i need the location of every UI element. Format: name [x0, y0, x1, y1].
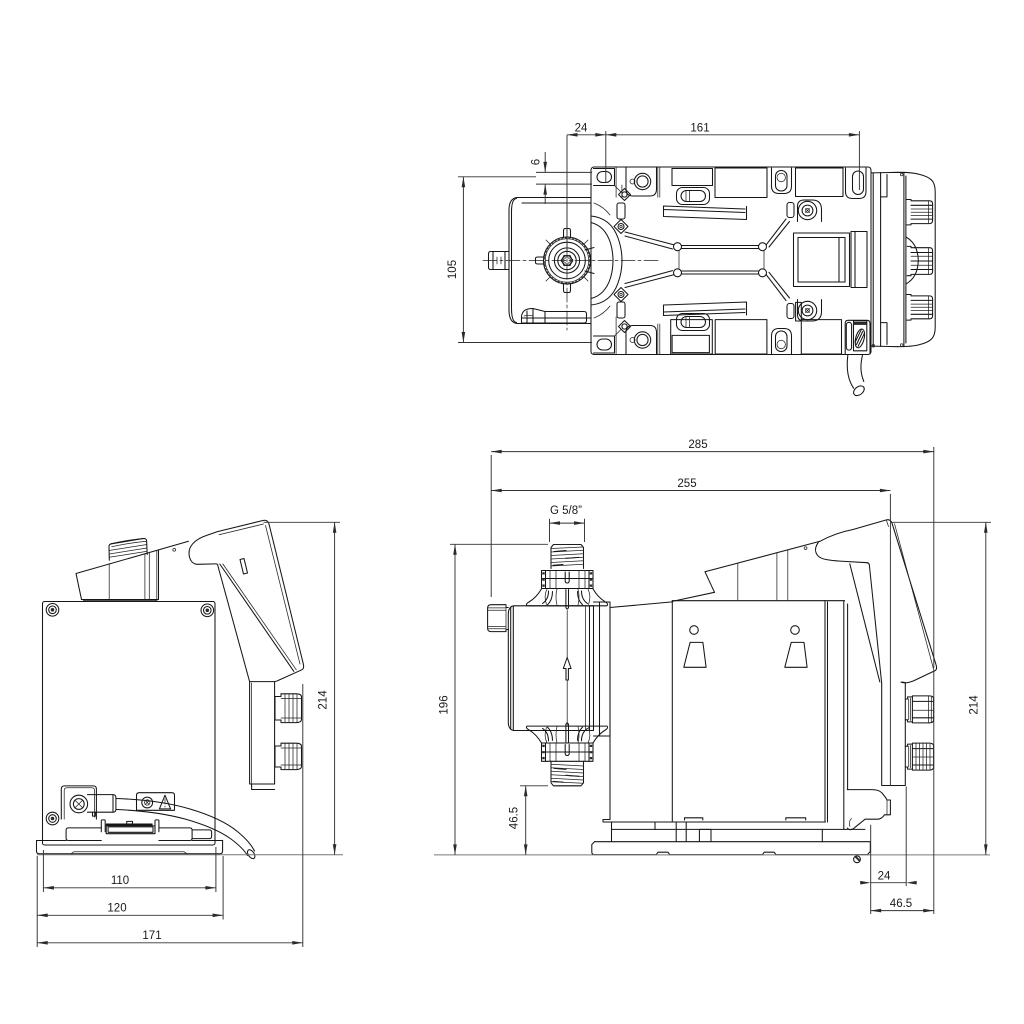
svg-text:171: 171: [142, 930, 161, 942]
svg-text:46.5: 46.5: [890, 898, 912, 910]
svg-text:255: 255: [677, 478, 696, 490]
svg-text:161: 161: [690, 123, 709, 135]
svg-text:214: 214: [318, 690, 330, 710]
svg-text:285: 285: [688, 439, 707, 451]
svg-text:46.5: 46.5: [509, 807, 521, 829]
svg-text:214: 214: [969, 695, 981, 715]
svg-text:110: 110: [111, 875, 129, 887]
svg-text:24: 24: [575, 123, 588, 135]
svg-text:6: 6: [531, 159, 543, 165]
svg-text:24: 24: [878, 871, 891, 883]
svg-text:105: 105: [447, 260, 459, 279]
svg-text:196: 196: [439, 695, 451, 714]
svg-text:120: 120: [107, 903, 126, 915]
svg-text:G 5/8”: G 5/8”: [550, 505, 582, 517]
